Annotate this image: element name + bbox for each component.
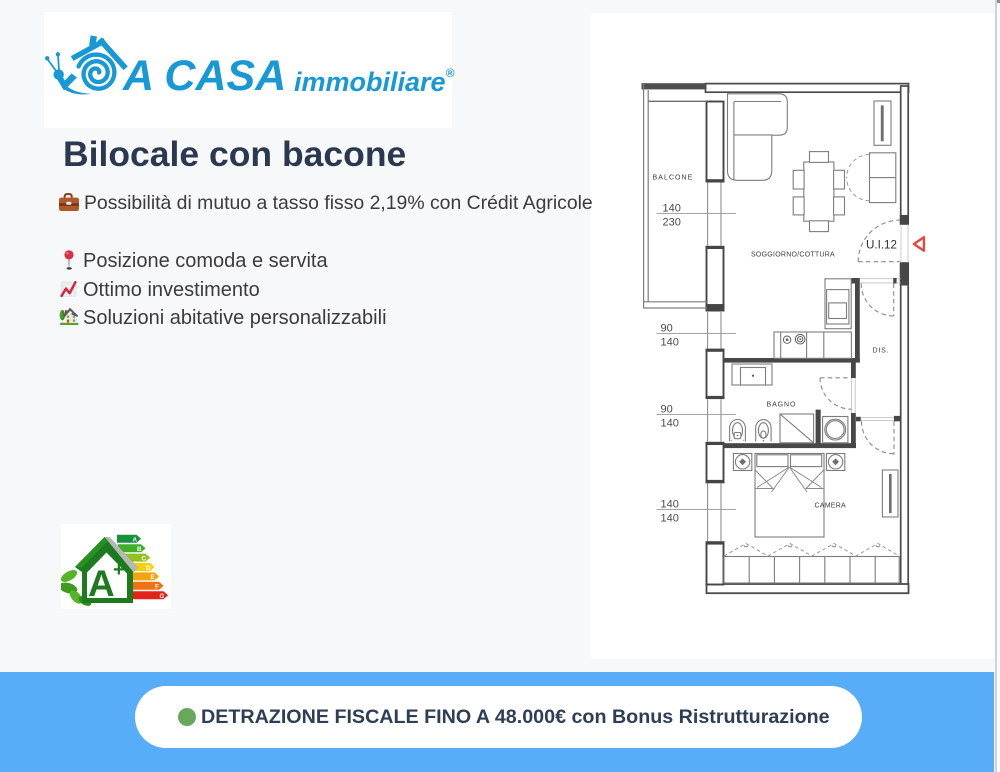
svg-text:F: F bbox=[155, 584, 159, 591]
svg-text:CAMERA: CAMERA bbox=[815, 503, 847, 510]
svg-text:140: 140 bbox=[661, 499, 679, 511]
svg-text:DIS.: DIS. bbox=[873, 347, 890, 354]
svg-text:140: 140 bbox=[661, 337, 679, 349]
svg-text:D: D bbox=[146, 565, 151, 572]
svg-text:A: A bbox=[88, 563, 115, 604]
svg-text:BAGNO: BAGNO bbox=[767, 401, 797, 408]
svg-text:U.I.12: U.I.12 bbox=[866, 239, 897, 252]
svg-text:B: B bbox=[137, 546, 142, 553]
svg-text:C: C bbox=[142, 555, 147, 562]
svg-text:140: 140 bbox=[663, 203, 681, 215]
svg-text:90: 90 bbox=[661, 404, 673, 416]
svg-text:140: 140 bbox=[661, 418, 679, 430]
svg-text:+: + bbox=[113, 559, 125, 581]
svg-text:90: 90 bbox=[661, 323, 673, 335]
svg-text:SOGGIORNO/COTTURA: SOGGIORNO/COTTURA bbox=[751, 251, 835, 258]
svg-text:BALCONE: BALCONE bbox=[653, 175, 694, 182]
svg-text:A: A bbox=[133, 537, 138, 544]
svg-text:140: 140 bbox=[661, 513, 679, 525]
svg-text:230: 230 bbox=[663, 217, 681, 229]
svg-text:E: E bbox=[151, 574, 155, 581]
svg-text:G: G bbox=[160, 593, 165, 600]
